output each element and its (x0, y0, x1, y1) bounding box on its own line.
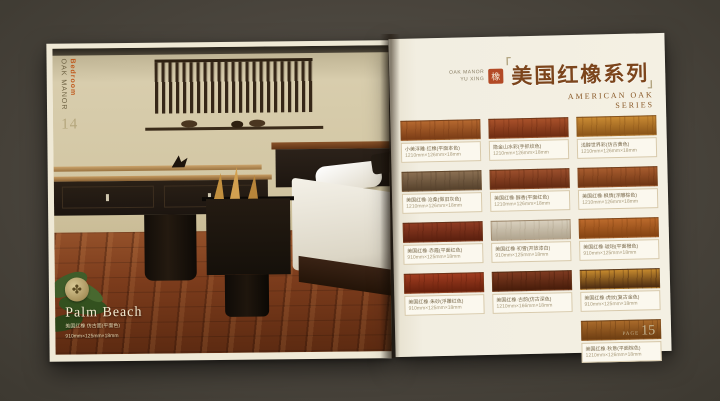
sample-card: 隐金山水彩(手抓纹色)1210mm×126mm×18mm (488, 117, 569, 161)
sample-label-box: 美国红橡·初雪(开放漆白)910mm×125mm×18mm (491, 241, 571, 263)
side-cabinet (206, 198, 291, 275)
sample-size: 1210mm×166mm×18mm (496, 302, 568, 310)
sample-size: 1210mm×126mm×18mm (405, 151, 477, 159)
sample-size: 910mm×125mm×18mm (407, 253, 479, 261)
decor-bowl (181, 120, 197, 127)
sailboat-decor (214, 173, 224, 199)
wood-swatch (400, 119, 480, 141)
sample-label-box: 美国红橡·古韵(仿古深色)1210mm×166mm×18mm (492, 292, 572, 314)
series-header: OAK MANOR YU XING 橡 美国红橡系列 AMERICAN OAK … (449, 57, 654, 115)
series-title-en-line1: AMERICAN OAK (568, 90, 654, 101)
wood-swatch (403, 221, 483, 243)
sample-size: 910mm×125mm×18mm (495, 251, 567, 259)
sample-size: 910mm×125mm×18mm (584, 300, 656, 308)
spine-label-primary: Bedroom (69, 58, 76, 96)
wood-swatch (576, 115, 656, 137)
brand-product-line1: 美国红橡 仿古面(平面色) (65, 323, 142, 331)
right-page-number: PAGE15 (622, 321, 655, 340)
brand-small-line2: YU XING (460, 76, 484, 83)
sample-size: 1210mm×126mm×18mm (586, 351, 658, 359)
slatted-hanging-lamp (155, 58, 314, 114)
sample-card: 美国红橡·虎纹(复古金色)910mm×125mm×18mm (580, 268, 661, 312)
wood-swatch (489, 168, 569, 190)
wood-swatch (579, 217, 659, 239)
sample-label-box: 美国红橡·枫情(浮雕棕色)1210mm×126mm×18mm (578, 188, 658, 210)
series-title-en-line2: SERIES (615, 101, 654, 111)
sample-label-box: 隐金山水彩(手抓纹色)1210mm×126mm×18mm (489, 139, 569, 161)
sample-card: 美国红橡·赤霞(平面红色)910mm×125mm×18mm (403, 221, 484, 265)
sample-size: 910mm×125mm×18mm (408, 304, 480, 312)
sample-card: 美国红橡·醇香(平面红色)1210mm×126mm×18mm (489, 168, 570, 212)
sample-size: 1210mm×126mm×18mm (406, 202, 478, 210)
sample-label-box: 美国红橡·沧桑(做旧灰色)1210mm×126mm×18mm (402, 192, 482, 214)
wood-swatch (492, 270, 572, 292)
sample-label-box: 美国红橡·琥珀(平面橙色)910mm×125mm×18mm (579, 239, 659, 261)
sample-size: 1210mm×126mm×18mm (494, 200, 566, 208)
sample-card: 美国红橡·琥珀(平面橙色)910mm×125mm×18mm (579, 217, 660, 261)
bedroom-photo: Bedroom OAK MANOR 14 ✤ Palm Beach 美国红橡 仿… (52, 45, 391, 355)
sample-card: 美国红橡·沧桑(做旧灰色)1210mm×126mm×18mm (401, 170, 482, 214)
series-title-cn: 美国红橡系列 (507, 57, 654, 90)
brand-block: ✤ Palm Beach 美国红橡 仿古面(平面色) 910mm×125mm×1… (65, 277, 143, 341)
sample-card: 美国红橡·朱砂(浮雕红色)910mm×125mm×18mm (404, 272, 485, 316)
wood-swatch (580, 268, 660, 290)
wood-swatch (401, 170, 481, 192)
brand-small-text: OAK MANOR YU XING (449, 69, 484, 84)
side-cabinet-leg (225, 274, 269, 316)
sample-label-box: 美国红橡·朱砂(浮雕红色)910mm×125mm×18mm (404, 294, 484, 316)
spine-label-secondary: OAK MANOR (60, 59, 68, 111)
wood-swatch (404, 272, 484, 294)
wood-swatch (577, 166, 657, 188)
sample-card: 浅醇世界彩(仿古黄色)1210mm×126mm×18mm (576, 115, 657, 159)
sample-card: 美国红橡·古韵(仿古深色)1210mm×166mm×18mm (492, 270, 573, 314)
sample-label-box: 浅醇世界彩(仿古黄色)1210mm×126mm×18mm (577, 137, 657, 159)
wood-swatch (488, 117, 568, 139)
spine-label: Bedroom OAK MANOR (59, 58, 78, 110)
brand-small-line1: OAK MANOR (449, 69, 484, 76)
sample-size: 1210mm×126mm×18mm (581, 147, 653, 155)
catalog-right-page: OAK MANOR YU XING 橡 美国红橡系列 AMERICAN OAK … (388, 33, 671, 357)
sample-card: 小美浮雕·红橡(平面本色)1210mm×126mm×18mm (400, 119, 481, 163)
sample-label-box: 美国红橡·秋意(平面棕色)1210mm×126mm×18mm (581, 341, 661, 363)
decor-bowl (249, 120, 265, 127)
sample-size: 1210mm×126mm×18mm (582, 198, 654, 206)
page-number-value: 15 (641, 323, 655, 338)
sample-label-box: 美国红橡·醇香(平面红色)1210mm×126mm×18mm (490, 190, 570, 212)
bed-cushion (370, 152, 391, 175)
series-title-en: AMERICAN OAK SERIES (450, 90, 654, 115)
sample-label-box: 美国红橡·赤霞(平面红色)910mm×125mm×18mm (403, 243, 483, 265)
sailboat-decor (230, 167, 240, 199)
decor-bowl (231, 121, 243, 128)
sample-size: 1210mm×126mm×18mm (493, 149, 565, 157)
sailboat-decor (248, 175, 258, 199)
sample-size: 910mm×125mm×18mm (583, 249, 655, 257)
wood-swatch (491, 219, 571, 241)
console-table-leg (144, 214, 197, 281)
sample-label-box: 小美浮雕·红橡(平面本色)1210mm×126mm×18mm (401, 141, 481, 163)
sample-card: 美国红橡·枫情(浮雕棕色)1210mm×126mm×18mm (577, 166, 658, 210)
left-page-number: 14 (61, 116, 78, 133)
catalog-left-page: Bedroom OAK MANOR 14 ✤ Palm Beach 美国红橡 仿… (46, 40, 391, 362)
sample-label-box: 美国红橡·虎纹(复古金色)910mm×125mm×18mm (580, 290, 660, 312)
drawer-knob (106, 194, 109, 201)
brand-product-line2: 910mm×125mm×18mm (65, 332, 142, 340)
leaf-emblem-icon: ✤ (65, 277, 89, 301)
page-label: PAGE (623, 332, 640, 337)
sample-card: 美国红橡·初雪(开放漆白)910mm×125mm×18mm (491, 219, 572, 263)
brand-name: Palm Beach (65, 305, 142, 322)
